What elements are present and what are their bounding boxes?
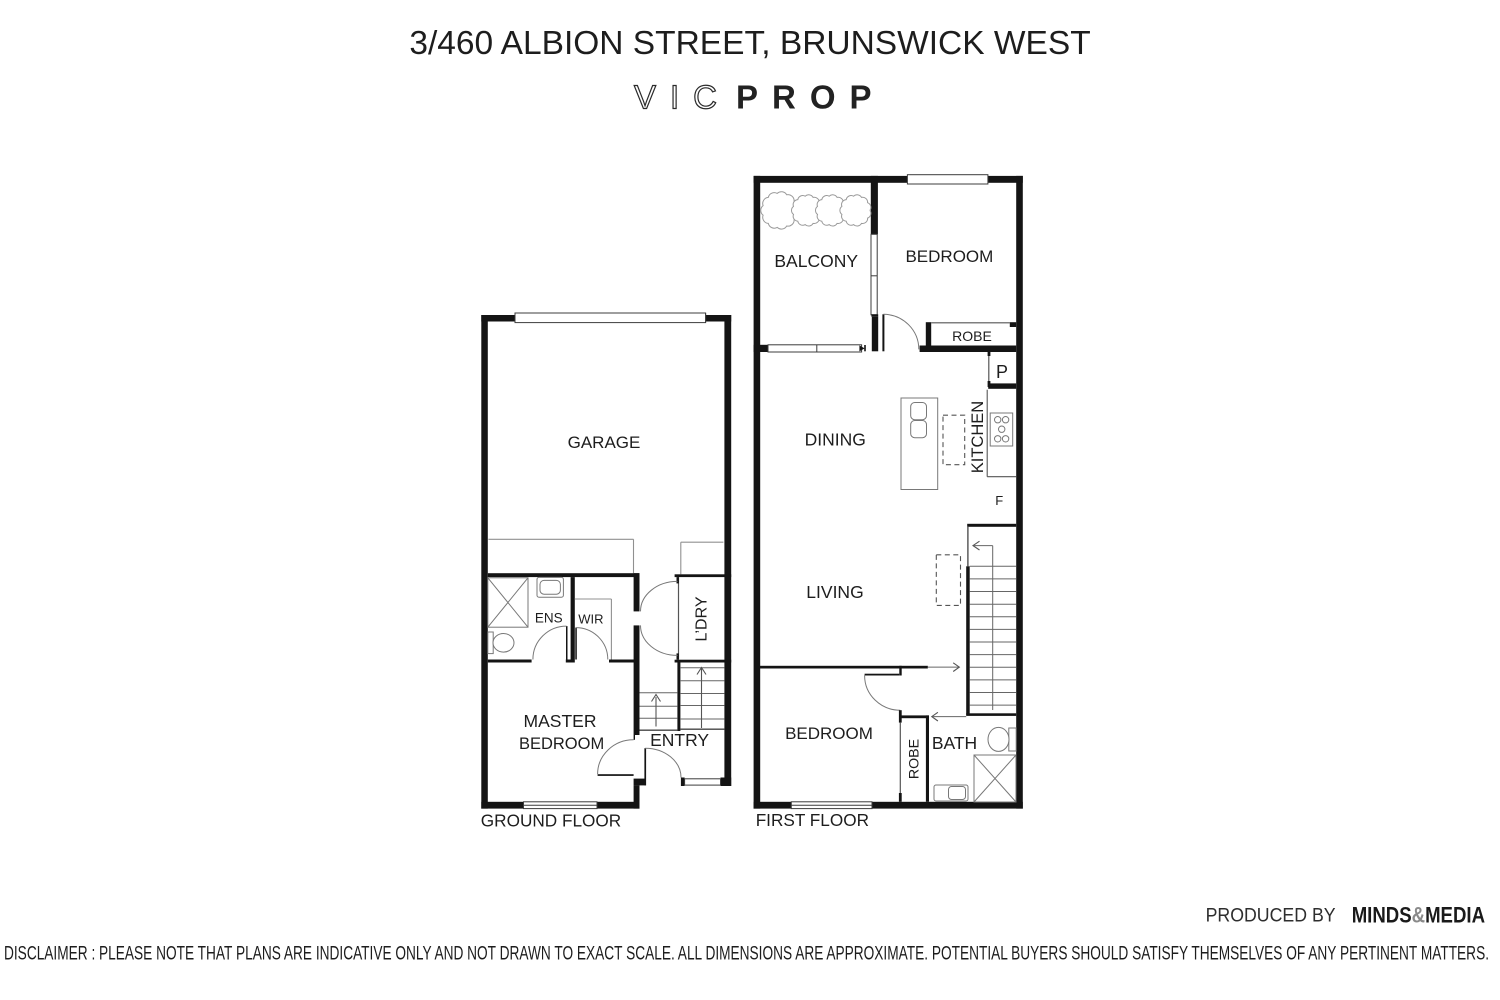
svg-text:GARAGE: GARAGE [568,433,641,452]
svg-text:KITCHEN: KITCHEN [969,401,987,473]
svg-text:VIC: VIC [634,79,731,116]
svg-text:ENS: ENS [535,610,563,625]
svg-text:BATH: BATH [932,733,977,753]
svg-text:P: P [996,362,1008,382]
svg-text:DINING: DINING [805,430,866,450]
svg-text:DISCLAIMER : PLEASE NOTE THAT: DISCLAIMER : PLEASE NOTE THAT PLANS ARE … [4,943,1489,965]
svg-text:PRODUCED BY: PRODUCED BY [1206,905,1336,927]
svg-text:MINDS&MEDIA: MINDS&MEDIA [1352,903,1485,928]
svg-text:ENTRY: ENTRY [650,730,709,750]
svg-text:FIRST FLOOR: FIRST FLOOR [756,810,869,830]
svg-text:L’DRY: L’DRY [694,596,711,641]
svg-text:ROBE: ROBE [952,328,992,344]
svg-text:LIVING: LIVING [806,582,863,602]
svg-text:F: F [995,493,1003,508]
svg-text:PROP: PROP [736,79,886,116]
svg-text:3/460 ALBION STREET, BRUNSWICK: 3/460 ALBION STREET, BRUNSWICK WEST [409,25,1090,62]
svg-text:BEDROOM: BEDROOM [519,735,604,753]
svg-text:ROBE: ROBE [907,739,923,779]
svg-text:MASTER: MASTER [524,711,597,731]
svg-text:BALCONY: BALCONY [774,251,858,271]
svg-text:BEDROOM: BEDROOM [905,247,993,266]
svg-text:GROUND FLOOR: GROUND FLOOR [481,811,621,831]
svg-text:BEDROOM: BEDROOM [785,724,873,743]
svg-text:WIR: WIR [578,612,603,627]
